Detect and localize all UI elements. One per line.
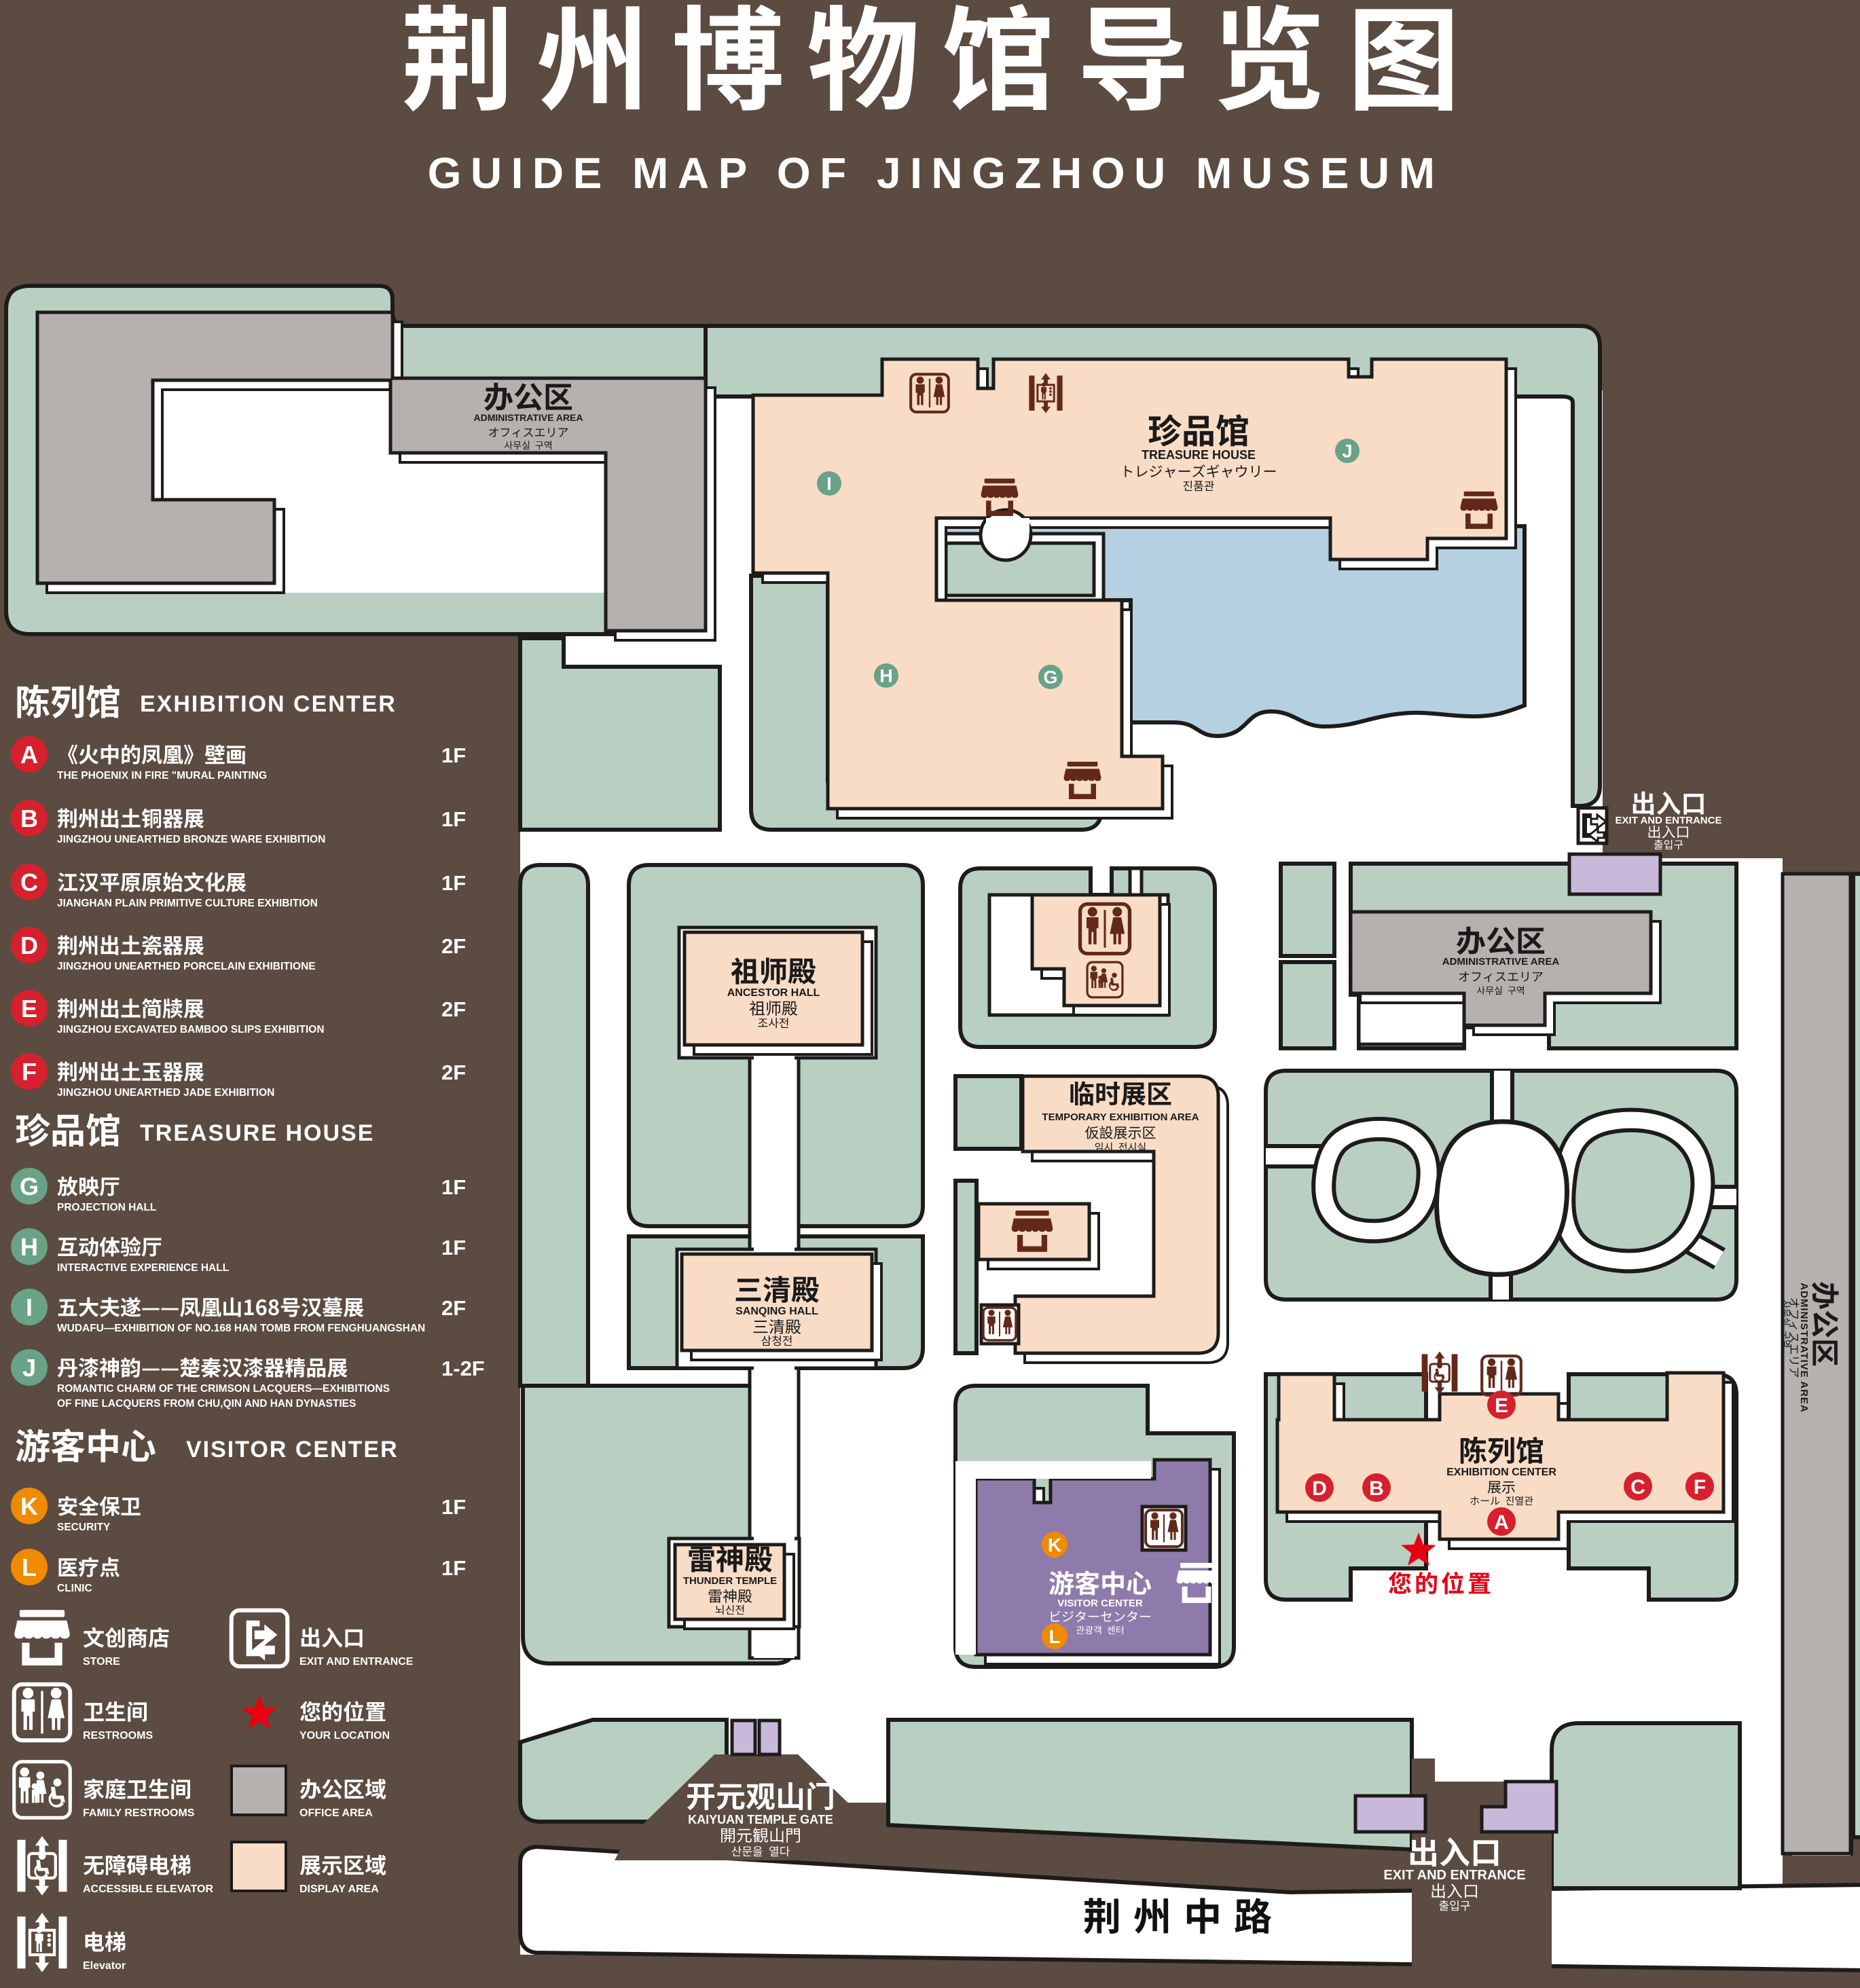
svg-text:2F: 2F <box>441 934 466 958</box>
svg-text:ADMINISTRATIVE AREA: ADMINISTRATIVE AREA <box>474 412 583 423</box>
svg-text:TREASURE HOUSE: TREASURE HOUSE <box>1142 448 1256 462</box>
svg-text:THE PHOENIX IN FIRE "MURAL PAI: THE PHOENIX IN FIRE "MURAL PAINTING <box>57 770 267 781</box>
svg-text:ADMINISTRATIVE AREA: ADMINISTRATIVE AREA <box>1442 956 1560 968</box>
svg-text:OF FINE LACQUERS FROM CHU,QIN: OF FINE LACQUERS FROM CHU,QIN AND HAN DY… <box>57 1398 356 1410</box>
svg-text:B: B <box>20 805 38 832</box>
svg-text:1F: 1F <box>441 1495 466 1519</box>
svg-text:TREASURE HOUSE: TREASURE HOUSE <box>140 1120 374 1146</box>
svg-text:JINGZHOU EXCAVATED BAMBOO SLIP: JINGZHOU EXCAVATED BAMBOO SLIPS EXHIBITI… <box>57 1024 325 1035</box>
svg-text:Elevator: Elevator <box>83 1960 126 1972</box>
svg-text:H: H <box>20 1233 38 1261</box>
svg-text:SANQING HALL: SANQING HALL <box>735 1306 818 1317</box>
svg-text:EXIT AND ENTRANCE: EXIT AND ENTRANCE <box>299 1656 414 1668</box>
svg-text:K: K <box>1048 1534 1061 1556</box>
svg-text:I: I <box>26 1293 33 1321</box>
svg-text:K: K <box>20 1492 38 1520</box>
svg-text:L: L <box>1048 1626 1060 1647</box>
svg-text:1F: 1F <box>441 1175 466 1199</box>
svg-text:TEMPORARY EXHIBITION AREA: TEMPORARY EXHIBITION AREA <box>1042 1111 1199 1123</box>
svg-text:ADMINISTRATIVE AREA: ADMINISTRATIVE AREA <box>1798 1283 1810 1413</box>
svg-text:YOUR LOCATION: YOUR LOCATION <box>299 1730 390 1742</box>
svg-text:JINGZHOU UNEARTHED PORCELAIN E: JINGZHOU UNEARTHED PORCELAIN EXHIBITIONE <box>57 961 316 972</box>
svg-text:EXHIBITION CENTER: EXHIBITION CENTER <box>1446 1467 1556 1478</box>
svg-text:GUIDE MAP OF JINGZHOU MUSEUM: GUIDE MAP OF JINGZHOU MUSEUM <box>428 149 1444 198</box>
svg-text:KAIYUAN TEMPLE GATE: KAIYUAN TEMPLE GATE <box>688 1813 833 1826</box>
svg-text:E: E <box>21 995 37 1023</box>
svg-text:EXIT AND ENTRANCE: EXIT AND ENTRANCE <box>1616 815 1722 826</box>
svg-text:1F: 1F <box>441 743 466 767</box>
svg-text:2F: 2F <box>441 1296 466 1320</box>
svg-text:JINGZHOU UNEARTHED JADE EXHIBI: JINGZHOU UNEARTHED JADE EXHIBITION <box>57 1087 274 1099</box>
svg-text:C: C <box>20 868 38 896</box>
svg-text:1F: 1F <box>441 1236 466 1259</box>
svg-text:EXIT AND ENTRANCE: EXIT AND ENTRANCE <box>1383 1868 1525 1883</box>
svg-text:SECURITY: SECURITY <box>57 1522 111 1533</box>
svg-text:F: F <box>22 1058 37 1086</box>
svg-text:J: J <box>22 1354 36 1382</box>
svg-text:D: D <box>20 932 38 959</box>
svg-text:D: D <box>1312 1477 1327 1500</box>
svg-text:JIANGHAN PLAIN PRIMITIVE CULTU: JIANGHAN PLAIN PRIMITIVE CULTURE EXHIBIT… <box>57 898 318 909</box>
svg-text:PROJECTION HALL: PROJECTION HALL <box>57 1202 156 1213</box>
svg-text:WUDAFU—EXHIBITION OF NO.168 HA: WUDAFU—EXHIBITION OF NO.168 HAN TOMB FRO… <box>57 1323 425 1334</box>
svg-text:INTERACTIVE EXPERIENCE HALL: INTERACTIVE EXPERIENCE HALL <box>57 1262 229 1274</box>
svg-text:F: F <box>1694 1476 1706 1498</box>
svg-text:J: J <box>1342 441 1352 462</box>
svg-text:DISPLAY AREA: DISPLAY AREA <box>299 1883 379 1895</box>
svg-text:ANCESTOR HALL: ANCESTOR HALL <box>727 987 820 999</box>
svg-text:A: A <box>1494 1511 1509 1534</box>
svg-text:1F: 1F <box>441 807 466 831</box>
svg-text:ACCESSIBLE ELEVATOR: ACCESSIBLE ELEVATOR <box>83 1883 213 1895</box>
svg-text:1-2F: 1-2F <box>441 1357 485 1380</box>
svg-text:1F: 1F <box>441 1556 466 1580</box>
svg-text:L: L <box>22 1553 37 1581</box>
svg-text:THUNDER TEMPLE: THUNDER TEMPLE <box>683 1575 777 1587</box>
svg-text:A: A <box>20 741 38 769</box>
svg-text:C: C <box>1630 1476 1645 1498</box>
svg-text:I: I <box>826 474 832 494</box>
svg-text:E: E <box>1495 1395 1508 1417</box>
svg-text:G: G <box>1043 667 1057 688</box>
svg-text:VISITOR CENTER: VISITOR CENTER <box>1057 1598 1143 1609</box>
svg-text:1F: 1F <box>441 871 466 895</box>
svg-text:G: G <box>20 1173 39 1200</box>
svg-text:B: B <box>1369 1477 1384 1500</box>
svg-text:H: H <box>879 666 893 686</box>
svg-text:VISITOR CENTER: VISITOR CENTER <box>186 1437 399 1462</box>
svg-text:CLINIC: CLINIC <box>57 1583 92 1594</box>
svg-text:RESTROOMS: RESTROOMS <box>83 1730 153 1742</box>
svg-text:EXHIBITION CENTER: EXHIBITION CENTER <box>140 691 397 717</box>
svg-text:JINGZHOU UNEARTHED BRONZE WARE: JINGZHOU UNEARTHED BRONZE WARE EXHIBITIO… <box>57 834 325 845</box>
svg-text:FAMILY RESTROOMS: FAMILY RESTROOMS <box>83 1807 195 1819</box>
svg-text:STORE: STORE <box>83 1656 120 1668</box>
svg-text:OFFICE AREA: OFFICE AREA <box>299 1807 373 1819</box>
svg-text:2F: 2F <box>441 1061 466 1084</box>
svg-text:ROMANTIC CHARM OF THE CRIMSON: ROMANTIC CHARM OF THE CRIMSON LACQUERS—E… <box>57 1383 390 1395</box>
svg-text:2F: 2F <box>441 997 466 1021</box>
